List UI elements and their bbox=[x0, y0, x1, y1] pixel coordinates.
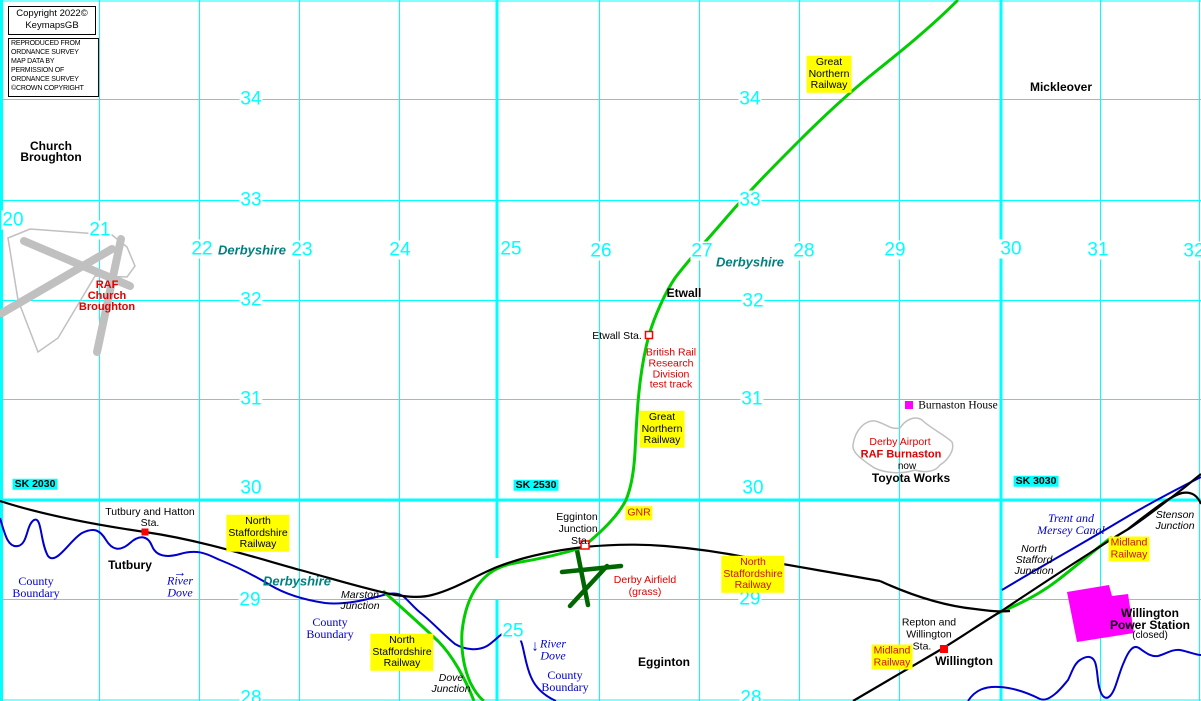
railway-label-midland-willington: MidlandRailway bbox=[872, 645, 913, 670]
grid-northing-34-left: 34 bbox=[239, 90, 262, 109]
label-river-dove-1: RiverDove bbox=[167, 576, 193, 599]
grid-easting-31: 31 bbox=[1086, 241, 1109, 260]
junction-marston: MarstonJunction bbox=[340, 590, 379, 612]
grid-easting-30: 30 bbox=[999, 240, 1022, 259]
grid-northing-33-left: 33 bbox=[239, 191, 262, 210]
grid-northing-33-mid: 33 bbox=[738, 191, 761, 210]
label-derby-airfield: Derby Airfield(grass) bbox=[614, 574, 676, 598]
label-brr-test-track: British Rail Research Division test trac… bbox=[646, 347, 696, 390]
river-dove-arrow-down: ↓ bbox=[531, 640, 539, 655]
grid-easting-24: 24 bbox=[388, 241, 411, 260]
grid-easting-32: 32 bbox=[1182, 242, 1201, 261]
railway-label-gnr-etwall: GreatNorthernRailway bbox=[640, 411, 685, 448]
place-willington: Willington bbox=[935, 655, 993, 667]
place-church-broughton: ChurchBroughton bbox=[20, 141, 81, 163]
grid-northing-30-mid: 30 bbox=[741, 479, 764, 498]
grid-easting-25-bottom: 25 bbox=[501, 622, 524, 641]
railway-label-nsr-marston: NorthStaffordshireRailway bbox=[370, 634, 433, 671]
grid-northing-28-mid: 28 bbox=[739, 689, 762, 701]
label-toyota-works: Toyota Works bbox=[872, 472, 950, 484]
grid-northing-30-left: 30 bbox=[239, 479, 262, 498]
grid-ref-sk3030: SK 3030 bbox=[1014, 476, 1059, 487]
grid-easting-21: 21 bbox=[88, 221, 111, 240]
grid-northing-31-mid: 31 bbox=[740, 390, 763, 409]
junction-stenson: StensonJunction bbox=[1155, 510, 1194, 532]
derby-airfield-runways bbox=[562, 550, 621, 606]
place-egginton: Egginton bbox=[638, 656, 690, 668]
station-egginton-junction: Egginton Junction Sta. bbox=[556, 511, 597, 547]
place-mickleover: Mickleover bbox=[1030, 81, 1092, 93]
grid-easting-23: 23 bbox=[290, 241, 313, 260]
grid-ref-sk2530: SK 2530 bbox=[514, 480, 559, 491]
label-raf-church-broughton: RAF Church Broughton bbox=[79, 280, 135, 312]
junction-north-stafford: North Stafford Junction bbox=[1014, 544, 1053, 576]
river-trent-path bbox=[968, 647, 1201, 701]
label-derby-airport: Derby Airport bbox=[869, 437, 930, 448]
place-tutbury: Tutbury bbox=[108, 559, 152, 571]
grid-easting-29: 29 bbox=[883, 241, 906, 260]
map-canvas: 20 21 22 23 24 25 26 27 28 29 30 31 32 2… bbox=[0, 0, 1201, 701]
grid-easting-28: 28 bbox=[792, 242, 815, 261]
label-trent-mersey-canal: Trent andMersey Canal bbox=[1037, 512, 1105, 536]
os-notice-box: REPRODUCED FROM ORDNANCE SURVEY MAP DATA… bbox=[8, 38, 99, 97]
station-tutbury-hatton: Tutbury and HattonSta. bbox=[105, 507, 195, 529]
grid-easting-27: 27 bbox=[690, 242, 713, 261]
burnaston-house-marker bbox=[905, 401, 913, 409]
label-power-station: Willington Power Station (closed) bbox=[1110, 607, 1190, 641]
label-county-boundary-3: CountyBoundary bbox=[541, 669, 588, 693]
label-county-boundary-1: CountyBoundary bbox=[12, 575, 59, 599]
label-raf-burnaston: RAF Burnaston bbox=[861, 450, 942, 461]
grid-easting-26: 26 bbox=[589, 242, 612, 261]
grid-northing-34-mid: 34 bbox=[738, 90, 761, 109]
junction-dove: DoveJunction bbox=[431, 673, 470, 695]
railway-label-gnr-top: GreatNorthernRailway bbox=[807, 56, 852, 93]
grid-northing-29-mid: 29 bbox=[738, 590, 761, 609]
grid-northing-32-mid: 32 bbox=[741, 292, 764, 311]
station-etwall: Etwall Sta. bbox=[592, 331, 642, 342]
grid-ref-sk2030: SK 2030 bbox=[13, 479, 58, 490]
label-burnaston-house: Burnaston House bbox=[918, 400, 998, 412]
label-county-boundary-2: CountyBoundary bbox=[306, 616, 353, 640]
grid-northing-28-left: 28 bbox=[239, 689, 262, 701]
grid-northing-31-left: 31 bbox=[239, 390, 262, 409]
railway-label-midland-stenson: MidlandRailway bbox=[1109, 537, 1150, 562]
grid-easting-22: 22 bbox=[190, 240, 213, 259]
grid-northing-32-left: 32 bbox=[239, 291, 262, 310]
grid-easting-20: 20 bbox=[1, 211, 24, 230]
place-etwall: Etwall bbox=[667, 287, 702, 299]
grid-easting-25: 25 bbox=[499, 240, 522, 259]
label-river-dove-2: RiverDove bbox=[540, 639, 566, 662]
railway-label-gnr-short: GNR bbox=[625, 506, 652, 520]
grid-northing-29-left: 29 bbox=[238, 591, 261, 610]
railway-label-nsr-willington: NorthStaffordshireRailway bbox=[721, 556, 784, 593]
county-derbyshire-2: Derbyshire bbox=[716, 256, 784, 269]
county-derbyshire-1: Derbyshire bbox=[218, 244, 286, 257]
railway-label-nsr-tutbury: NorthStaffordshireRailway bbox=[226, 515, 289, 552]
copyright-box: Copyright 2022©KeymapsGB bbox=[8, 6, 96, 35]
county-derbyshire-3: Derbyshire bbox=[263, 575, 331, 588]
